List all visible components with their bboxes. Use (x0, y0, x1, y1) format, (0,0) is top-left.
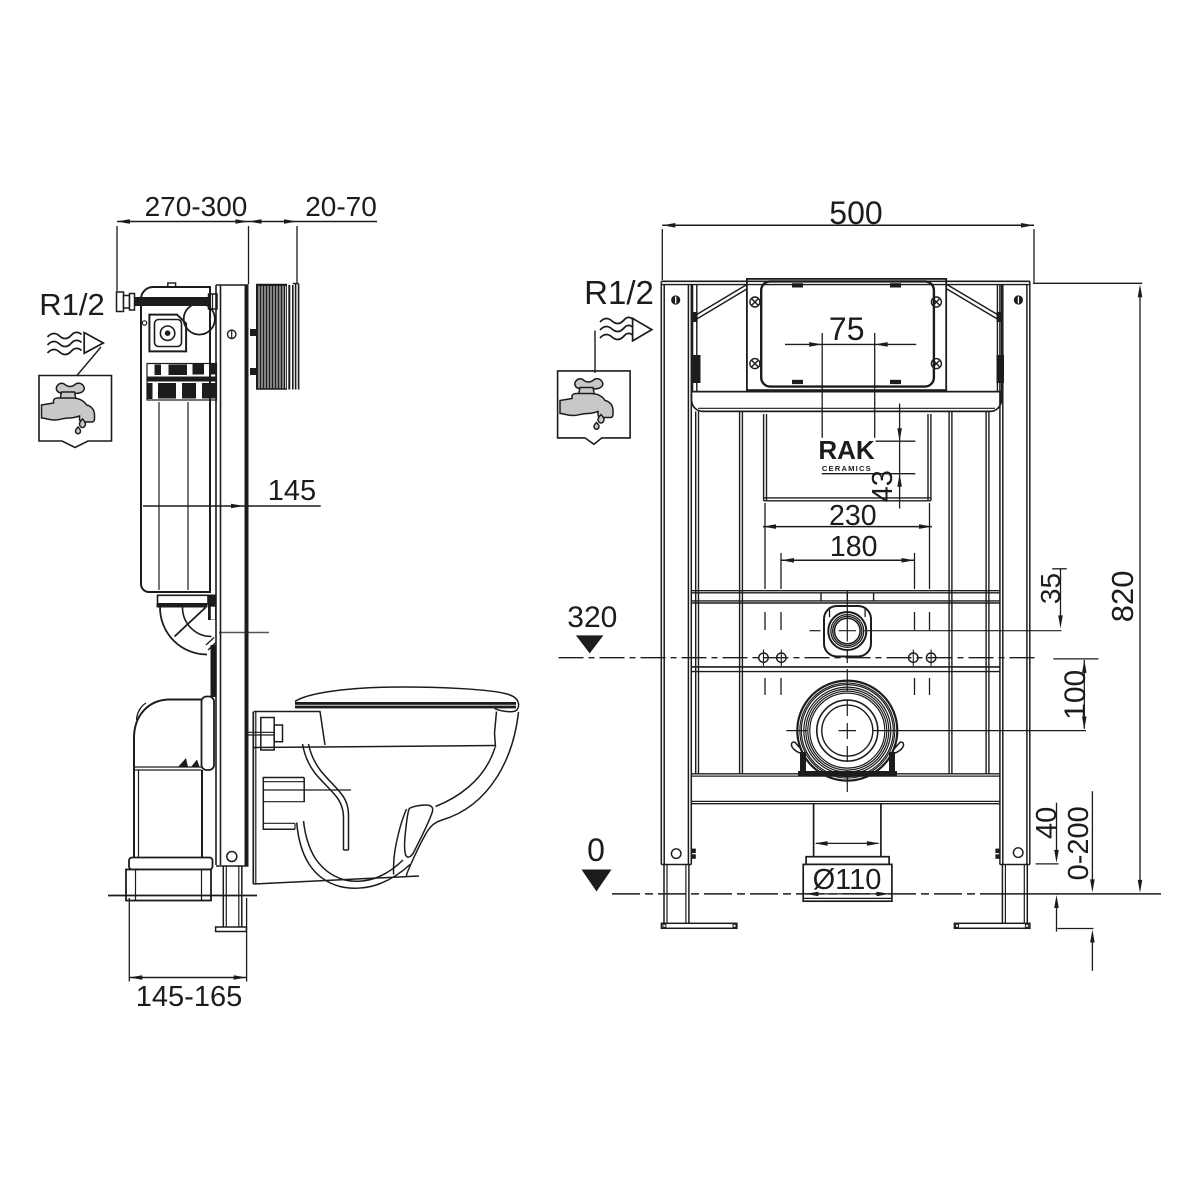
svg-text:75: 75 (829, 311, 865, 347)
svg-text:43: 43 (867, 470, 899, 502)
svg-text:145: 145 (268, 475, 316, 507)
svg-text:Ø110: Ø110 (813, 864, 882, 896)
svg-text:20-70: 20-70 (305, 191, 377, 222)
svg-text:180: 180 (830, 531, 878, 563)
svg-text:270-300: 270-300 (145, 191, 248, 222)
svg-text:100: 100 (1059, 670, 1092, 720)
svg-text:230: 230 (829, 500, 877, 532)
svg-text:R1/2: R1/2 (39, 287, 104, 322)
svg-text:0: 0 (587, 832, 605, 868)
svg-text:35: 35 (1035, 573, 1066, 604)
svg-text:0-200: 0-200 (1063, 806, 1095, 880)
svg-text:145-165: 145-165 (136, 981, 242, 1013)
svg-text:320: 320 (567, 601, 617, 634)
svg-text:RAK: RAK (818, 435, 875, 465)
svg-text:40: 40 (1031, 807, 1063, 839)
svg-text:820: 820 (1105, 571, 1140, 623)
svg-text:CERAMICS: CERAMICS (822, 464, 872, 473)
svg-text:500: 500 (829, 195, 882, 231)
svg-text:R1/2: R1/2 (584, 274, 654, 311)
